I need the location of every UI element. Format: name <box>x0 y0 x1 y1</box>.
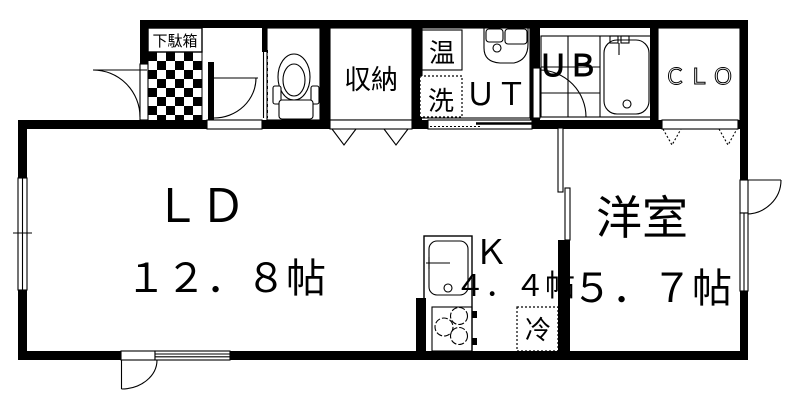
storage-folding-door-left <box>332 129 356 145</box>
partition-sliding-door <box>558 128 570 240</box>
closet-folding-door-left <box>663 129 681 145</box>
bottom-window <box>155 351 230 360</box>
western-room-size: ５．７帖 <box>572 266 732 312</box>
wall-segment <box>230 351 748 360</box>
wall-segment <box>532 120 662 129</box>
left-window <box>13 178 32 290</box>
floorplan-page: 下駄箱 収納 温 洗 ＵＴ <box>0 0 799 411</box>
kitchen-label: Ｋ <box>474 233 508 273</box>
storage-room: 収納 <box>330 28 412 145</box>
bathtub-icon <box>604 36 649 114</box>
wall-segment <box>740 20 748 180</box>
unit-bath-label: ＵＢ <box>538 49 598 84</box>
entrance-area: 下駄箱 <box>93 28 202 122</box>
shoe-cabinet-label: 下駄箱 <box>152 32 197 50</box>
wall-segment <box>208 62 214 122</box>
toilet-seat-icon <box>283 64 305 96</box>
wall-segment <box>650 28 658 122</box>
right-window <box>740 213 748 291</box>
right-door-arc <box>746 180 781 214</box>
closet-label: ＣＬＯ <box>664 65 736 90</box>
hall-door-threshold <box>207 120 262 129</box>
washbasin-icon <box>484 28 528 63</box>
toilet-tank-icon <box>279 100 313 119</box>
water-heater-label: 温 <box>429 39 455 69</box>
fridge-box: 冷 <box>517 307 558 351</box>
terrace-door-arc <box>122 360 158 389</box>
utility-sliding-door <box>428 120 532 129</box>
terrace-door <box>121 351 157 389</box>
toilet-room <box>264 28 321 120</box>
unit-bath-room: ＵＢ <box>533 36 652 118</box>
wall-segment <box>412 120 428 129</box>
closet-folding-door-track <box>662 120 738 129</box>
kitchen-area: Ｋ ４．４帖 冷 <box>424 233 575 352</box>
closet-room: ＣＬＯ <box>658 28 740 145</box>
hall-door <box>207 78 262 129</box>
entrance-door-opening <box>140 64 148 120</box>
living-dining-size: １２．８帖 <box>126 256 326 302</box>
storage-label: 収納 <box>344 65 398 96</box>
right-door <box>740 180 781 214</box>
wall-segment <box>320 28 330 122</box>
storage-folding-door-track <box>330 120 412 129</box>
western-room-label: 洋室 <box>596 191 688 245</box>
closet-folding-door-right <box>719 129 737 145</box>
utility-room: 温 洗 ＵＴ <box>420 28 532 129</box>
wall-segment <box>140 20 748 28</box>
wall-segment <box>18 120 27 178</box>
utility-label: ＵＴ <box>465 77 527 113</box>
storage-folding-door-right <box>384 129 408 145</box>
wall-segment <box>140 20 148 64</box>
genkan-checker-floor <box>148 52 202 122</box>
wall-segment <box>18 351 121 360</box>
wall-segment <box>18 290 27 360</box>
living-dining-label: ＬＤ <box>154 179 246 233</box>
wall-segment <box>262 120 330 129</box>
floorplan-drawing: 下駄箱 収納 温 洗 ＵＴ <box>0 0 799 411</box>
wall-segment <box>740 291 748 360</box>
bath-door-leaf <box>533 68 540 118</box>
entrance-door-arc <box>93 70 140 117</box>
washer-label: 洗 <box>428 87 454 117</box>
wall-segment <box>262 28 267 52</box>
stove-icon <box>432 307 477 351</box>
fridge-label: 冷 <box>525 316 551 346</box>
hall-door-arc <box>214 78 256 118</box>
kitchen-size: ４．４帖 <box>455 269 575 304</box>
